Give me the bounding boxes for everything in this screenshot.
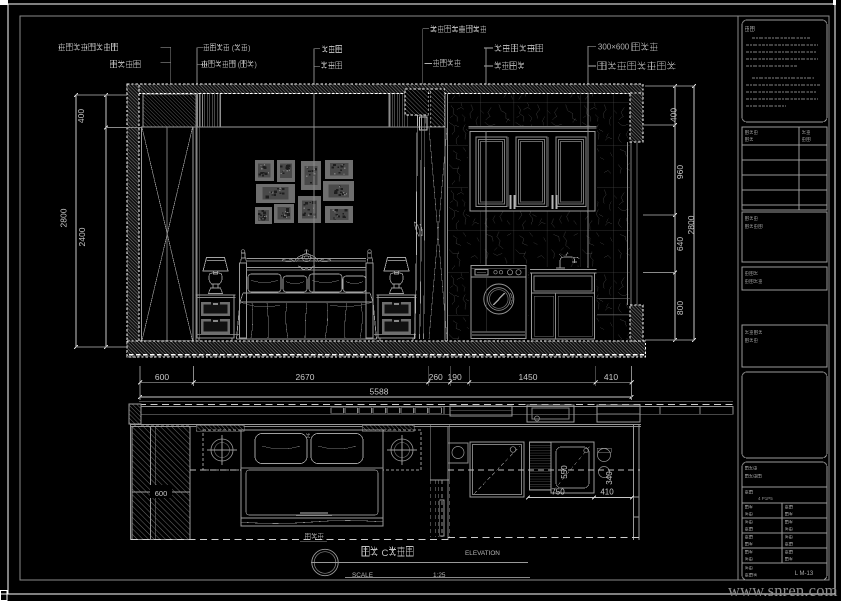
svg-text:2670: 2670 xyxy=(296,372,315,382)
svg-text:1450: 1450 xyxy=(519,372,538,382)
svg-text:2800: 2800 xyxy=(686,215,696,234)
svg-text:L M-13: L M-13 xyxy=(795,571,814,577)
svg-text:640: 640 xyxy=(675,237,685,251)
svg-text:400: 400 xyxy=(669,108,679,122)
svg-text:400: 400 xyxy=(76,109,86,123)
svg-text:260: 260 xyxy=(429,372,443,382)
svg-text:340: 340 xyxy=(605,471,614,485)
svg-text:410: 410 xyxy=(600,488,614,497)
svg-text:): ) xyxy=(255,62,257,69)
svg-text:600: 600 xyxy=(155,489,168,498)
svg-text:1:25: 1:25 xyxy=(433,572,446,579)
svg-text:SCALE: SCALE xyxy=(352,572,373,579)
svg-text:800: 800 xyxy=(675,301,685,315)
svg-text:ELEVATION: ELEVATION xyxy=(465,550,500,557)
svg-text:410: 410 xyxy=(604,372,618,382)
svg-text:2400: 2400 xyxy=(77,227,87,246)
svg-text:2800: 2800 xyxy=(59,208,69,227)
svg-text:): ) xyxy=(248,45,250,52)
svg-text:550: 550 xyxy=(560,465,569,479)
svg-text:600: 600 xyxy=(155,372,169,382)
svg-text:5588: 5588 xyxy=(370,387,389,397)
svg-text:750: 750 xyxy=(551,488,565,497)
svg-text:www.snren.com: www.snren.com xyxy=(728,581,838,600)
svg-text:300×600: 300×600 xyxy=(598,43,630,52)
svg-text:960: 960 xyxy=(675,165,685,179)
svg-text:190: 190 xyxy=(448,372,462,382)
svg-text:4 P1P5: 4 P1P5 xyxy=(758,496,773,501)
svg-text:C: C xyxy=(382,548,389,559)
